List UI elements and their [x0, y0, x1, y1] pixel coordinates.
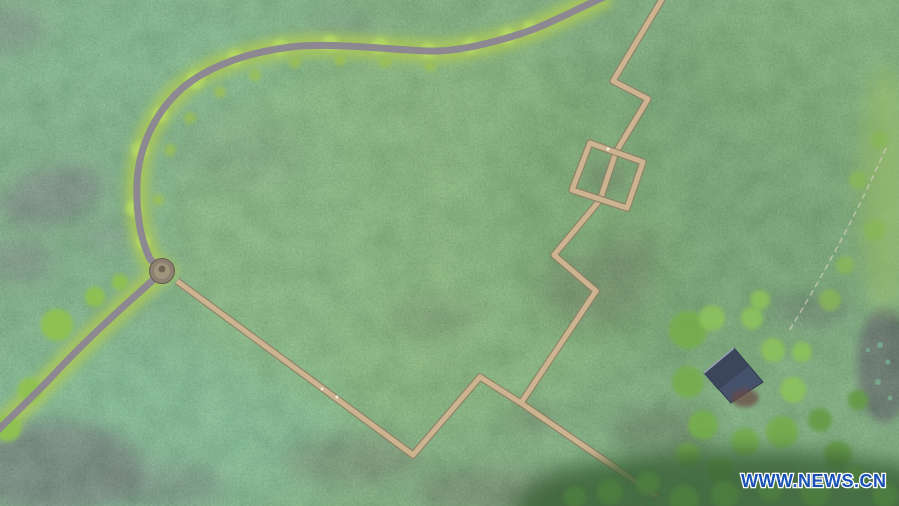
roadside-trees-inner [289, 56, 301, 68]
watermark-text: WWW.NEWS.CN [741, 471, 886, 491]
building-trees [766, 416, 798, 448]
lily-pads-on-water [877, 342, 883, 348]
right-edge-bushes [819, 289, 841, 311]
bottom-trees [636, 471, 660, 495]
lily-pads-on-water [888, 396, 893, 401]
building-trees-dark [808, 408, 832, 432]
roadside-trees-inner [334, 54, 346, 66]
building-trees [672, 366, 704, 398]
building-ground-patch [731, 389, 759, 407]
roadside-trees-inner [424, 60, 436, 72]
right-edge-bushes [849, 171, 867, 189]
building-trees-dark [848, 390, 868, 410]
building-trees-light [750, 290, 770, 310]
building-trees-light [741, 307, 763, 329]
roadside-trees-inner [379, 56, 391, 68]
walkway-specks [321, 388, 324, 391]
walkway-specks [606, 147, 609, 150]
right-edge-bushes [871, 131, 889, 149]
aerial-photo: WWW.NEWS.CN [0, 0, 899, 506]
leaf-noise-highlights [0, 0, 899, 506]
scene-layers [0, 0, 899, 506]
building-trees-light [792, 342, 812, 362]
building-trees-light [761, 338, 785, 362]
bottom-trees [597, 479, 623, 505]
roadside-trees-inner [214, 86, 226, 98]
lily-pads-on-water [886, 360, 891, 365]
building-trees-light [780, 377, 806, 403]
roadside-trees-inner [249, 69, 261, 81]
right-edge-bushes [864, 219, 886, 241]
thatched-hut-peak [159, 266, 166, 273]
lily-pads-on-water [866, 348, 870, 352]
walkway-specks [336, 396, 339, 399]
roadside-trees-inner [164, 144, 176, 156]
right-edge-bushes [836, 256, 854, 274]
building-trees-light [699, 305, 725, 331]
roadside-trees-inner [152, 194, 164, 206]
roadside-trees-inner [184, 112, 196, 124]
lower-road-trees [112, 274, 128, 290]
lily-pads-on-water [875, 379, 881, 385]
lower-road-trees [41, 309, 73, 341]
aerial-photo-frame: WWW.NEWS.CN [0, 0, 899, 506]
lower-road-trees [85, 287, 105, 307]
building-trees [688, 410, 718, 440]
